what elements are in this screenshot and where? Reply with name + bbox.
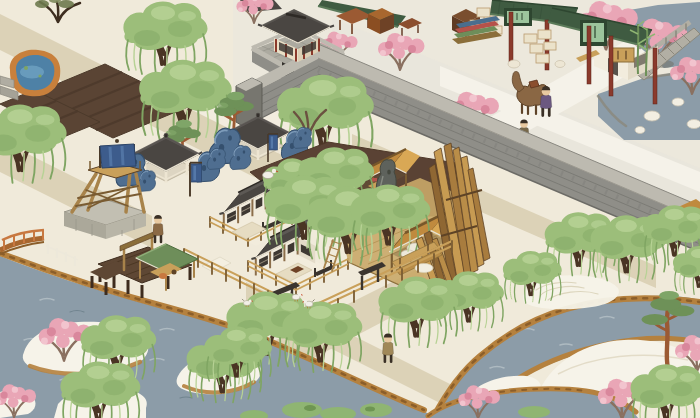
watchtower-flag xyxy=(100,144,136,168)
game-screen: Isometric Jiangnan water-town scene (cit… xyxy=(0,0,700,418)
game-viewport: Isometric Jiangnan water-town scene (cit… xyxy=(0,0,700,418)
west-pond[interactable]: Blue pond with earthen rim xyxy=(10,50,61,97)
